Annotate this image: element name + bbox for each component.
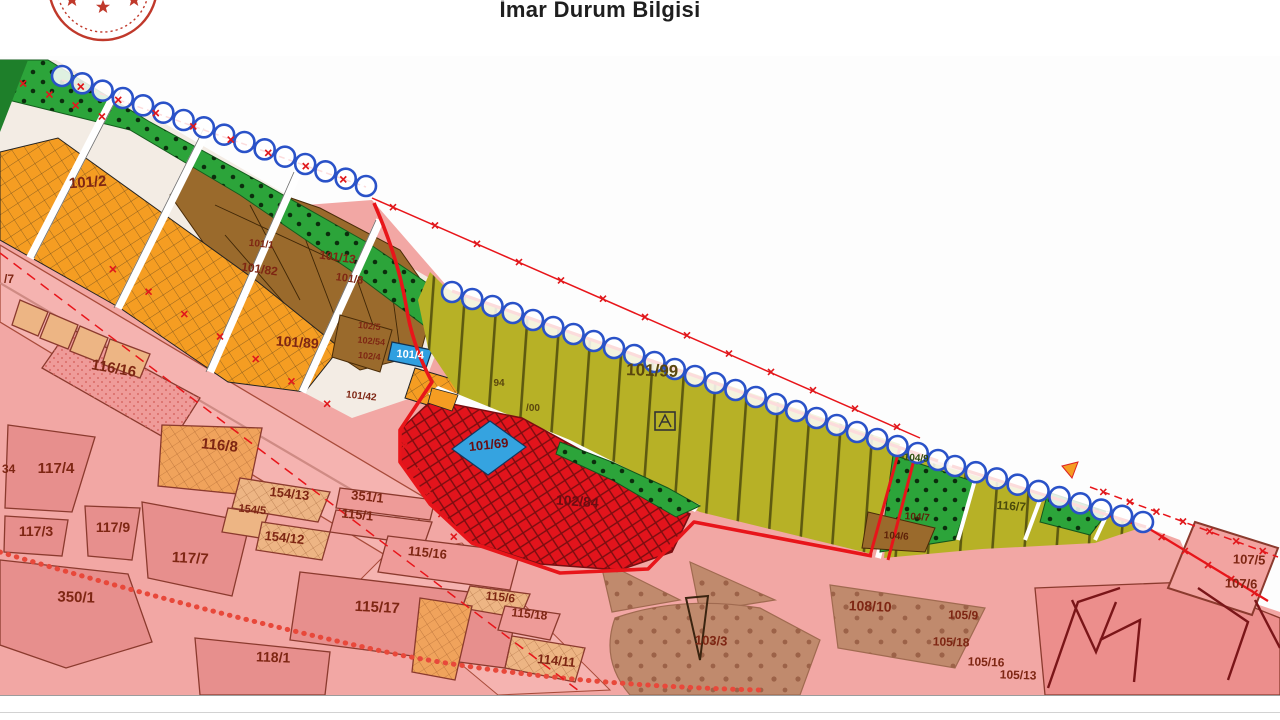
parcel-label: 118/1 [256, 648, 291, 665]
zoning-map-area: 101/2101/1101/13101/82101/8101/89102/510… [0, 56, 1280, 695]
parcel-label: 101/89 [275, 333, 319, 352]
imar-durum-page: İmar Durum Bilgisi [0, 0, 1280, 720]
parcel-label: 101/2 [68, 173, 107, 193]
parcel-label: 115/17 [354, 598, 400, 617]
parcel-label: 102/84 [555, 492, 599, 511]
parcel-label: 105/13 [1000, 667, 1037, 682]
parcel-label: 101/4 [396, 348, 425, 362]
parcel-label: 34 [2, 462, 16, 476]
parcel-label: 108/10 [848, 597, 892, 614]
parcel-label: 101/99 [626, 360, 679, 381]
parcel-label: 104/7 [904, 511, 930, 524]
parcel-label: 117/7 [171, 549, 209, 568]
parcel-label: 107/5 [1233, 551, 1266, 567]
parcel-label: 117/3 [19, 523, 53, 539]
parcel-label: 94 [493, 378, 505, 389]
parcel-label: 117/9 [96, 519, 130, 535]
document-header: İmar Durum Bilgisi [0, 0, 1280, 57]
parcel-label: /7 [4, 272, 14, 286]
parcel-label: 105/18 [933, 634, 970, 649]
parcel-label: /00 [526, 403, 540, 414]
page-title: İmar Durum Bilgisi [0, 0, 1240, 23]
parcel-label: 116/7 [996, 498, 1027, 514]
parcel-label: 103/3 [695, 632, 728, 648]
bottom-margin [0, 695, 1280, 720]
parcel-label: 350/1 [57, 588, 95, 606]
parcel-label: 104/9 [903, 452, 929, 465]
parcel-label: 107/6 [1225, 575, 1258, 591]
zoning-map: 101/2101/1101/13101/82101/8101/89102/510… [0, 56, 1280, 695]
parcel-label: 105/9 [948, 607, 979, 622]
parcel-label: 104/6 [883, 530, 909, 543]
footer-line [0, 712, 1280, 713]
parcel-label: 117/4 [38, 460, 75, 477]
